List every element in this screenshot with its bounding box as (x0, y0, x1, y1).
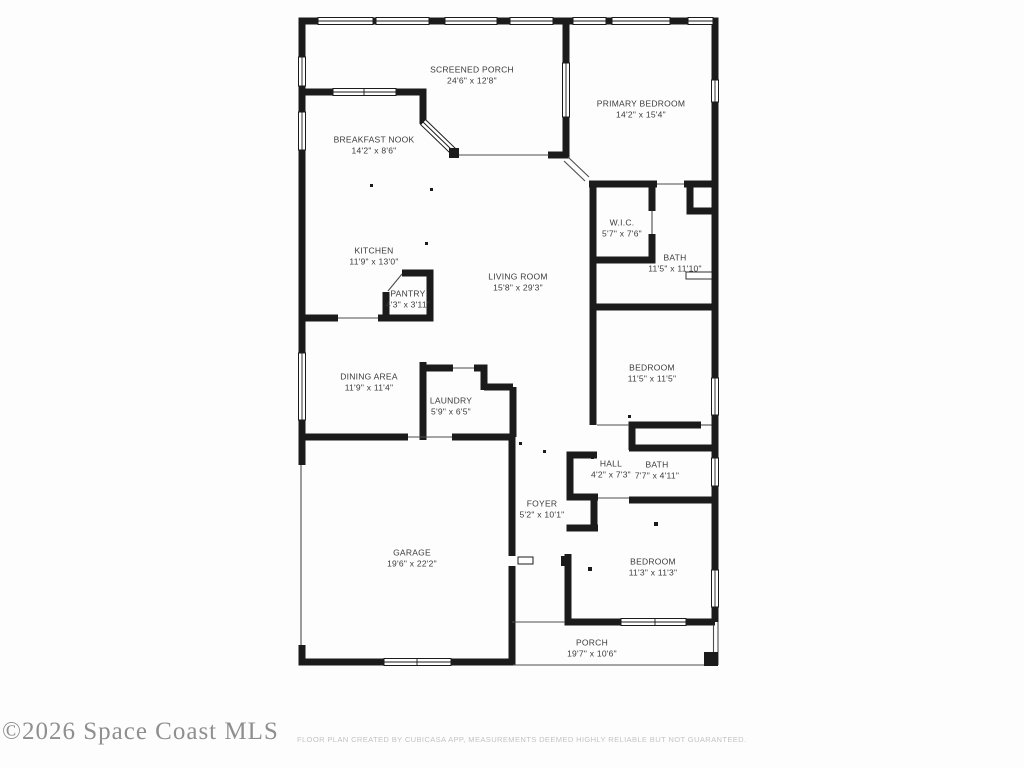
room-name: PANTRY (386, 289, 430, 300)
room-dimensions: 11'5" x 11'5" (628, 373, 677, 384)
room-name: BATH (648, 253, 702, 264)
room-name: LAUNDRY (430, 396, 472, 407)
room-dimensions: 24'6" x 12'8" (430, 75, 514, 86)
room-label-breakfast-nook: BREAKFAST NOOK14'2" x 8'6" (334, 135, 415, 156)
room-dimensions: 19'6" x 22'2" (387, 558, 437, 569)
room-name: FOYER (520, 499, 565, 510)
room-dimensions: 11'9" x 11'4" (340, 382, 398, 393)
room-label-laundry: LAUNDRY5'9" x 6'5" (430, 396, 472, 417)
room-label-screened-porch: SCREENED PORCH24'6" x 12'8" (430, 65, 514, 86)
room-label-foyer: FOYER5'2" x 10'1" (520, 499, 565, 520)
room-name: LIVING ROOM (488, 272, 547, 283)
room-label-bath-hall: BATH7'7" x 4'11" (635, 460, 679, 481)
room-label-bedroom-middle: BEDROOM11'5" x 11'5" (628, 363, 677, 384)
room-label-kitchen: KITCHEN11'9" x 13'0" (349, 246, 398, 267)
room-name: BEDROOM (629, 557, 678, 568)
room-dimensions: 4'3" x 3'11" (386, 299, 430, 310)
cubicasa-disclaimer: FLOOR PLAN CREATED BY CUBICASA APP, MEAS… (297, 735, 746, 744)
room-dimensions: 14'2" x 15'4" (597, 109, 685, 120)
room-name: W.I.C. (602, 218, 642, 229)
room-label-wic: W.I.C.5'7" x 7'6" (602, 218, 642, 239)
room-label-hall: HALL4'2" x 7'3" (591, 459, 631, 480)
room-dimensions: 19'7" x 10'6" (567, 648, 617, 659)
room-label-dining-area: DINING AREA11'9" x 11'4" (340, 372, 398, 393)
room-name: PRIMARY BEDROOM (597, 99, 685, 110)
floor-plan-page: SCREENED PORCH24'6" x 12'8"PRIMARY BEDRO… (0, 0, 1024, 768)
room-dimensions: 14'2" x 8'6" (334, 145, 415, 156)
room-dimensions: 15'8" x 29'3" (488, 282, 547, 293)
room-label-bedroom-bottom: BEDROOM11'3" x 11'3" (629, 557, 678, 578)
mls-watermark: ©2026 Space Coast MLS (2, 718, 279, 746)
room-label-bath-primary: BATH11'5" x 11'10" (648, 253, 702, 274)
room-dimensions: 4'2" x 7'3" (591, 469, 631, 480)
room-name: GARAGE (387, 548, 437, 559)
room-name: BEDROOM (628, 363, 677, 374)
room-label-garage: GARAGE19'6" x 22'2" (387, 548, 437, 569)
room-dimensions: 5'9" x 6'5" (430, 406, 472, 417)
room-name: KITCHEN (349, 246, 398, 257)
room-dimensions: 11'5" x 11'10" (648, 263, 702, 274)
room-dimensions: 5'2" x 10'1" (520, 509, 565, 520)
room-dimensions: 11'9" x 13'0" (349, 256, 398, 267)
room-label-pantry: PANTRY4'3" x 3'11" (386, 289, 430, 310)
room-dimensions: 5'7" x 7'6" (602, 228, 642, 239)
room-dimensions: 11'3" x 11'3" (629, 567, 678, 578)
room-label-porch: PORCH19'7" x 10'6" (567, 638, 617, 659)
room-name: BATH (635, 460, 679, 471)
room-name: PORCH (567, 638, 617, 649)
room-label-living-room: LIVING ROOM15'8" x 29'3" (488, 272, 547, 293)
room-name: BREAKFAST NOOK (334, 135, 415, 146)
room-name: DINING AREA (340, 372, 398, 383)
room-name: HALL (591, 459, 631, 470)
room-name: SCREENED PORCH (430, 65, 514, 76)
floor-plan-drawing (0, 0, 1024, 768)
room-dimensions: 7'7" x 4'11" (635, 470, 679, 481)
room-label-primary-bedroom: PRIMARY BEDROOM14'2" x 15'4" (597, 99, 685, 120)
